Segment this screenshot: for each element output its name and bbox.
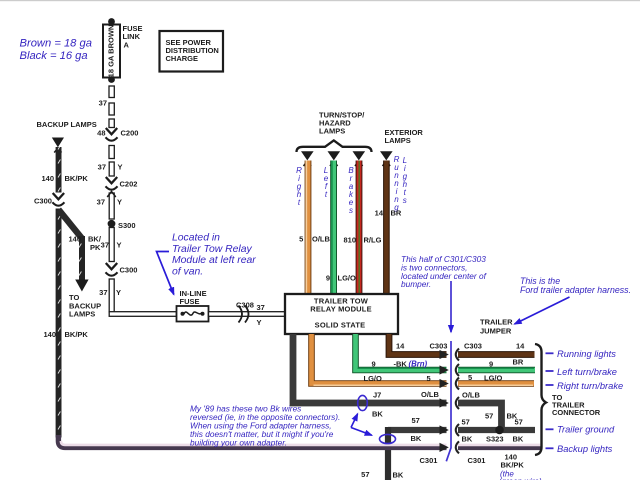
svg-text:building your own adapter.: building your own adapter. <box>190 438 287 448</box>
svg-text:O/LB: O/LB <box>462 391 480 400</box>
svg-text:BK: BK <box>393 471 404 480</box>
svg-text:BK: BK <box>372 410 383 419</box>
svg-text:BR: BR <box>513 358 524 367</box>
svg-text:Y: Y <box>118 163 123 172</box>
svg-text:5: 5 <box>427 374 431 383</box>
svg-text:BK: BK <box>462 435 473 444</box>
svg-text:JUMPER: JUMPER <box>480 327 512 336</box>
svg-text:37: 37 <box>99 288 107 297</box>
svg-text:(Brn): (Brn) <box>409 360 428 369</box>
svg-text:14: 14 <box>396 342 405 351</box>
svg-text:Brown = 18 ga: Brown = 18 ga <box>20 38 92 50</box>
svg-text:Black = 16 ga: Black = 16 ga <box>20 50 88 62</box>
svg-text:Backup lights: Backup lights <box>557 444 613 454</box>
svg-text:48: 48 <box>97 129 105 138</box>
svg-text:37: 37 <box>257 303 265 312</box>
svg-text:TRAILER: TRAILER <box>480 318 513 327</box>
svg-text:57: 57 <box>361 470 369 479</box>
svg-text:Y: Y <box>117 198 122 207</box>
svg-text:Left turn/brake: Left turn/brake <box>557 367 617 377</box>
svg-text:57: 57 <box>485 412 493 421</box>
svg-text:5: 5 <box>468 373 472 382</box>
svg-text:of van.: of van. <box>172 266 203 277</box>
svg-text:BK: BK <box>513 435 524 444</box>
svg-text:LAMPS: LAMPS <box>319 127 345 136</box>
svg-text:S323: S323 <box>486 435 504 444</box>
svg-text:37: 37 <box>98 163 106 172</box>
svg-text:C300: C300 <box>120 266 138 275</box>
svg-text:57: 57 <box>412 416 420 425</box>
svg-text:Module at left rear: Module at left rear <box>172 255 256 266</box>
svg-text:5: 5 <box>299 235 303 244</box>
svg-text:9: 9 <box>372 360 376 369</box>
svg-text:BR: BR <box>391 209 402 218</box>
svg-text:LAMPS: LAMPS <box>69 310 95 319</box>
svg-text:BACKUP LAMPS: BACKUP LAMPS <box>37 120 97 129</box>
svg-text:A: A <box>124 41 130 50</box>
svg-text:O/LB: O/LB <box>312 235 330 244</box>
svg-text:57: 57 <box>515 418 523 427</box>
svg-text:s: s <box>403 196 407 205</box>
svg-text:S300: S300 <box>118 221 136 230</box>
svg-text:18 GA BROWN: 18 GA BROWN <box>107 25 116 78</box>
svg-text:C202: C202 <box>120 180 138 189</box>
svg-text:RELAY MODULE: RELAY MODULE <box>310 304 372 313</box>
svg-text:Trailer ground: Trailer ground <box>557 425 615 435</box>
svg-text:FUSE: FUSE <box>180 297 200 306</box>
svg-text:Located in: Located in <box>172 233 220 244</box>
svg-text:37: 37 <box>101 241 109 250</box>
svg-text:C300: C300 <box>34 197 52 206</box>
svg-text:C303: C303 <box>430 342 448 351</box>
svg-text:PK: PK <box>90 243 101 252</box>
svg-text:9: 9 <box>326 274 330 283</box>
svg-text:-BK: -BK <box>394 360 408 369</box>
svg-text:CHARGE: CHARGE <box>166 54 199 63</box>
svg-text:Y: Y <box>117 241 122 250</box>
svg-text:Y: Y <box>116 288 121 297</box>
svg-text:BK/PK: BK/PK <box>65 174 89 183</box>
svg-text:C200: C200 <box>121 129 139 138</box>
svg-text:BK/PK: BK/PK <box>501 461 525 470</box>
svg-text:Trailer Tow Relay: Trailer Tow Relay <box>172 244 252 255</box>
svg-text:LAMPS: LAMPS <box>385 136 411 145</box>
svg-text:57: 57 <box>462 418 470 427</box>
svg-text:SOLID STATE: SOLID STATE <box>315 321 366 330</box>
svg-text:CONNECTOR: CONNECTOR <box>552 408 601 417</box>
svg-text:LG/O: LG/O <box>484 374 502 383</box>
svg-text:LG/O: LG/O <box>364 374 382 383</box>
svg-text:s: s <box>349 206 353 215</box>
svg-text:J7: J7 <box>373 391 381 400</box>
svg-text:9: 9 <box>489 360 493 369</box>
svg-text:BK/PK: BK/PK <box>65 330 89 339</box>
svg-text:Y: Y <box>257 318 262 327</box>
svg-text:O/LB: O/LB <box>421 390 439 399</box>
svg-text:140: 140 <box>43 330 56 339</box>
svg-text:810: 810 <box>343 236 356 245</box>
svg-text:C301: C301 <box>420 456 438 465</box>
svg-text:14: 14 <box>516 342 525 351</box>
svg-text:C303: C303 <box>464 342 482 351</box>
svg-text:bumper.: bumper. <box>401 279 431 289</box>
svg-text:14: 14 <box>375 209 384 218</box>
svg-text:37: 37 <box>97 198 105 207</box>
svg-text:Ford trailer adapter harness.: Ford trailer adapter harness. <box>520 285 631 295</box>
svg-text:37: 37 <box>99 99 107 108</box>
svg-text:C301: C301 <box>468 456 486 465</box>
svg-text:R/LG: R/LG <box>364 236 382 245</box>
svg-text:C308: C308 <box>236 301 254 310</box>
svg-text:Right turn/brake: Right turn/brake <box>557 381 623 391</box>
svg-text:LG/O: LG/O <box>338 274 356 283</box>
svg-text:Running lights: Running lights <box>557 349 616 359</box>
svg-text:BK: BK <box>411 434 422 443</box>
svg-text:140: 140 <box>68 235 81 244</box>
svg-text:140: 140 <box>41 174 54 183</box>
